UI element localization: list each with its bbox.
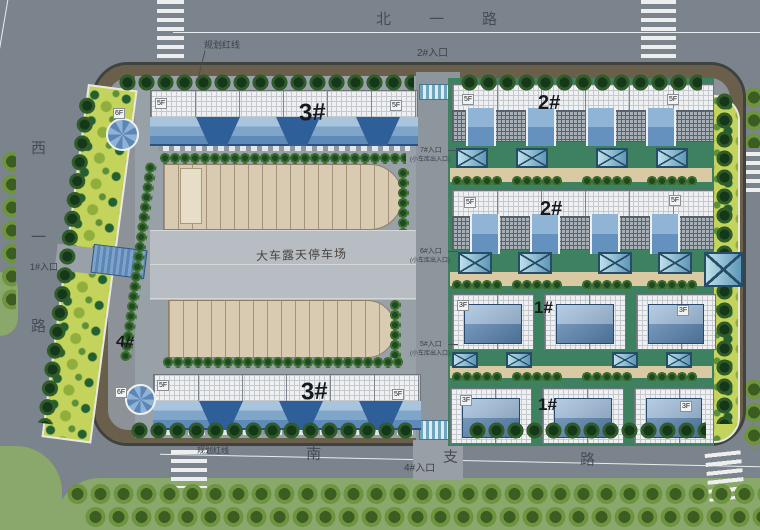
entrance-label-6: 6#入口 [420,248,442,255]
floor-chip-5f: 5F [158,381,168,390]
building-3-top-roof [150,90,418,118]
courtyard-hedge [512,176,562,185]
red-line-label-top: 规划红线 [204,41,240,50]
roof-panel [530,214,560,254]
balcony-strip [158,146,410,151]
roof-panel [470,214,500,254]
skylight [518,252,552,274]
skylight [456,148,488,168]
roof-panel [650,214,680,254]
floor-chip-3f: 3F [461,396,471,405]
courtyard-hedge [452,280,502,289]
hip-roof [648,304,704,344]
floor-chip-5f: 5F [465,198,475,207]
parking-stalls-south [168,300,396,358]
building-label-4: 4# [115,334,134,352]
courtyard-hedge [512,372,562,381]
road-label-north: 北一路 [376,12,535,27]
courtyard-hedge [452,372,502,381]
entrance-label-2: 2#入口 [417,49,448,59]
east-pavilion [704,252,743,287]
perimeter-trees-south-east [468,420,706,442]
parking-ramp-pad [180,168,202,224]
building-3-bottom-roof [153,374,421,402]
building-label-2-row1: 2# [538,93,560,113]
skylight [666,352,692,368]
skylight [596,148,628,168]
skylight [656,148,688,168]
entrance-note-5: (小车库出入口) [410,351,450,357]
skylight [516,148,548,168]
floor-chip-5f: 5F [463,95,473,104]
courtyard-hedge [582,176,632,185]
floor-chip-3f: 3F [458,301,468,310]
building-label-2-row2: 2# [540,199,562,219]
courtyard-hedge [512,280,562,289]
road-label-west: 西一路 [30,140,45,407]
parking-hedge-north [160,153,406,164]
parking-aisle [150,230,418,300]
roof-panel [646,108,676,146]
entrance-note-7: (小车库出入口) [410,157,450,163]
entrance-7-dash [448,150,458,151]
entrance-label-4: 4#入口 [404,464,435,475]
perimeter-trees-north-east [460,72,702,94]
building-3-top [150,90,418,152]
parking-hedge-east-top [398,168,409,230]
site-plan-canvas: 北一路 西一路 南支路 规划红线 规划红线 2#入口 1#入口 4#入口 7#入… [0,0,760,530]
building-label-3-bottom: 3# [301,380,329,405]
floor-chip-5f: 5F [393,390,403,399]
roof-panel [590,214,620,254]
hip-roof [464,304,522,344]
skylight [598,252,632,274]
perimeter-trees-north-west [118,72,414,94]
crosswalk-north-east [641,0,676,70]
entrance-6-dash [448,251,458,252]
entrance-label-5: 5#入口 [420,341,442,348]
skylight [458,252,492,274]
courtyard-hedge [647,280,697,289]
red-line-label-bottom: 规划红线 [197,447,229,455]
perimeter-trees-south-west [130,420,412,442]
floor-chip-5f: 5F [391,101,401,110]
skylight [612,352,638,368]
courtyard-hedge [582,280,632,289]
entrance-label-7: 7#入口 [420,147,442,154]
hip-roof [556,304,614,344]
floor-chip-5f: 5F [668,95,678,104]
plaza-umbrella-north [106,118,139,151]
skylight [658,252,692,274]
courtyard-hedge [647,176,697,185]
skylight [506,352,532,368]
lawn-southwest-corner [0,446,62,530]
courtyard-hedge [452,176,502,185]
roof-panel [586,108,616,146]
skylight [452,352,478,368]
floor-chip-5f: 5F [670,196,680,205]
roof-panel [466,108,496,146]
parking-hedge-east-bottom [390,300,401,358]
entrance-label-1: 1#入口 [30,263,58,272]
parking-hedge-south [163,357,403,368]
entrance-5-dash [448,344,458,345]
parking-label: 大车露天停车场 [256,248,347,262]
building-label-1-row3: 1# [534,299,553,316]
street-trees-west-column [0,150,16,310]
street-trees-south-row2 [84,505,760,529]
courtyard-hedge [582,372,632,381]
floor-chip-3f: 3F [681,402,691,411]
plaza-umbrella-south [125,384,156,415]
building-label-1-row4: 1# [538,396,557,413]
street-trees-south-row1 [66,482,760,506]
entrance-note-6: (小车库出入口) [410,258,450,264]
floor-chip-6f-top: 6F [114,109,124,118]
courtyard-hedge [647,372,697,381]
building-label-3-top: 3# [299,101,327,126]
road-label-south: 南支路 [306,447,717,471]
floor-chip-5f: 5F [156,99,166,108]
crosswalk-north-west [157,0,184,66]
floor-chip-6f-bottom: 6F [116,388,126,397]
floor-chip-3f: 3F [678,306,688,315]
